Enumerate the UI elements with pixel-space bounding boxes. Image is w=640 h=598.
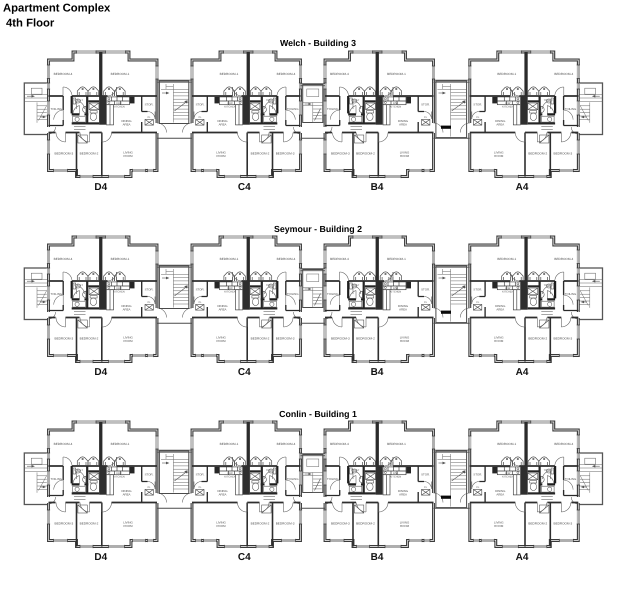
svg-text:Welch - Building 3: Welch - Building 3 [280,38,356,48]
svg-text:Seymour - Building 2: Seymour - Building 2 [274,224,362,234]
svg-text:Conlin - Building 1: Conlin - Building 1 [279,409,357,419]
svg-text:Apartment Complex: Apartment Complex [3,3,111,15]
svg-text:4th Floor: 4th Floor [6,18,55,30]
